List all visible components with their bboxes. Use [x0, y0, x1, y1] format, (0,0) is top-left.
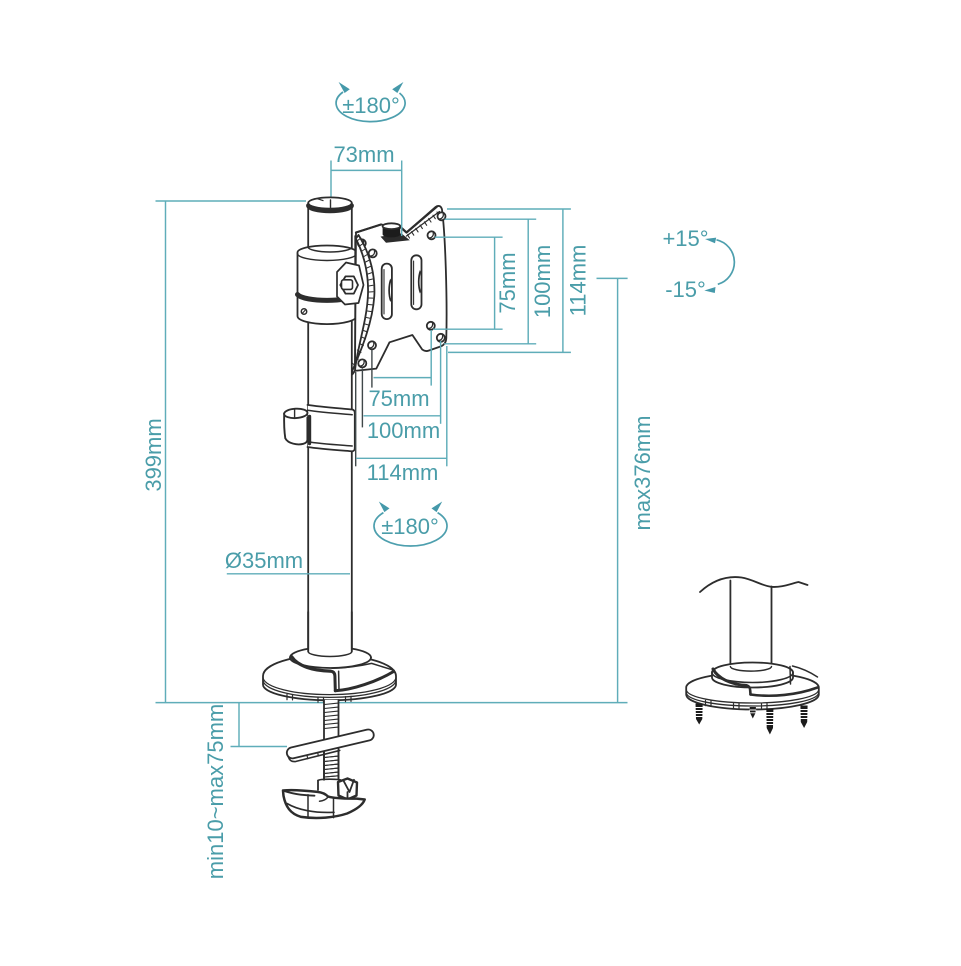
svg-text:100mm: 100mm	[530, 245, 555, 318]
svg-text:73mm: 73mm	[333, 142, 394, 167]
svg-text:±180°: ±180°	[342, 93, 400, 118]
svg-text:75mm: 75mm	[495, 252, 520, 313]
svg-text:100mm: 100mm	[367, 418, 440, 443]
svg-text:±180°: ±180°	[381, 514, 439, 539]
svg-text:75mm: 75mm	[368, 386, 429, 411]
svg-text:+15°: +15°	[662, 226, 708, 251]
svg-text:-15°: -15°	[665, 277, 706, 302]
svg-text:114mm: 114mm	[367, 460, 439, 485]
svg-text:min10~max75mm: min10~max75mm	[203, 704, 228, 879]
svg-text:max376mm: max376mm	[630, 416, 655, 531]
svg-text:399mm: 399mm	[141, 418, 166, 491]
svg-text:Ø35mm: Ø35mm	[225, 548, 303, 573]
svg-text:114mm: 114mm	[566, 245, 591, 317]
